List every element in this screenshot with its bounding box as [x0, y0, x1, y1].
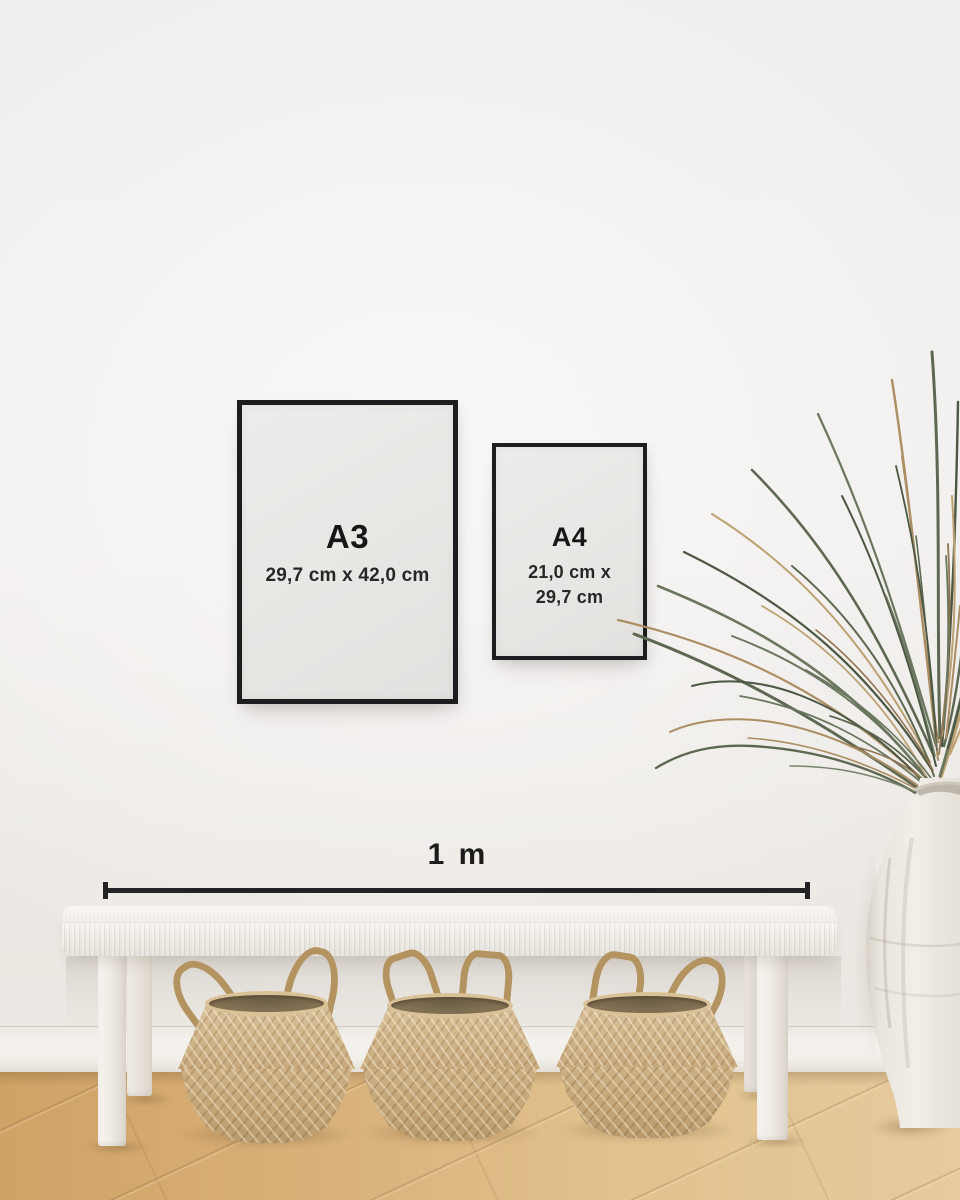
- frame-a4-content: A4 21,0 cm x 29,7 cm: [528, 522, 611, 609]
- scale-tick-left: [103, 882, 108, 899]
- poster-frame-a3: A3 29,7 cm x 42,0 cm: [237, 400, 458, 704]
- basket-interior: [205, 991, 329, 1016]
- storage-basket-2: [360, 995, 540, 1141]
- frame-a4-dimensions: 21,0 cm x 29,7 cm: [528, 560, 611, 609]
- basket-interior: [583, 992, 710, 1017]
- vase: [850, 778, 960, 1138]
- scale-label: 1 m: [103, 838, 810, 872]
- bench-seat-front: [62, 923, 837, 956]
- scale-tick-right: [805, 882, 810, 899]
- scale-line: [103, 888, 810, 893]
- storage-basket-3: [556, 994, 738, 1138]
- scale-bar: 1 m: [103, 838, 810, 898]
- frame-a3-dimensions: 29,7 cm x 42,0 cm: [266, 565, 430, 587]
- frame-a3-size-label: A3: [266, 518, 430, 556]
- bench-leg-left-front: [98, 950, 126, 1146]
- bench-seat-top: [62, 906, 837, 923]
- frame-a4-size-label: A4: [528, 522, 611, 553]
- bench-leg-left-rear: [127, 950, 152, 1096]
- storage-basket-1: [178, 993, 355, 1143]
- bench-seat: [62, 906, 837, 956]
- basket-interior: [387, 993, 513, 1018]
- palm-plant: [600, 318, 960, 818]
- frame-a4-dimensions-line1: 21,0 cm x: [528, 560, 611, 584]
- frame-a3-content: A3 29,7 cm x 42,0 cm: [266, 518, 430, 587]
- frame-a4-dimensions-line2: 29,7 cm: [528, 585, 611, 609]
- bench-leg-right-front: [757, 950, 788, 1140]
- room-scene: A3 29,7 cm x 42,0 cm A4 21,0 cm x 29,7 c…: [0, 0, 960, 1200]
